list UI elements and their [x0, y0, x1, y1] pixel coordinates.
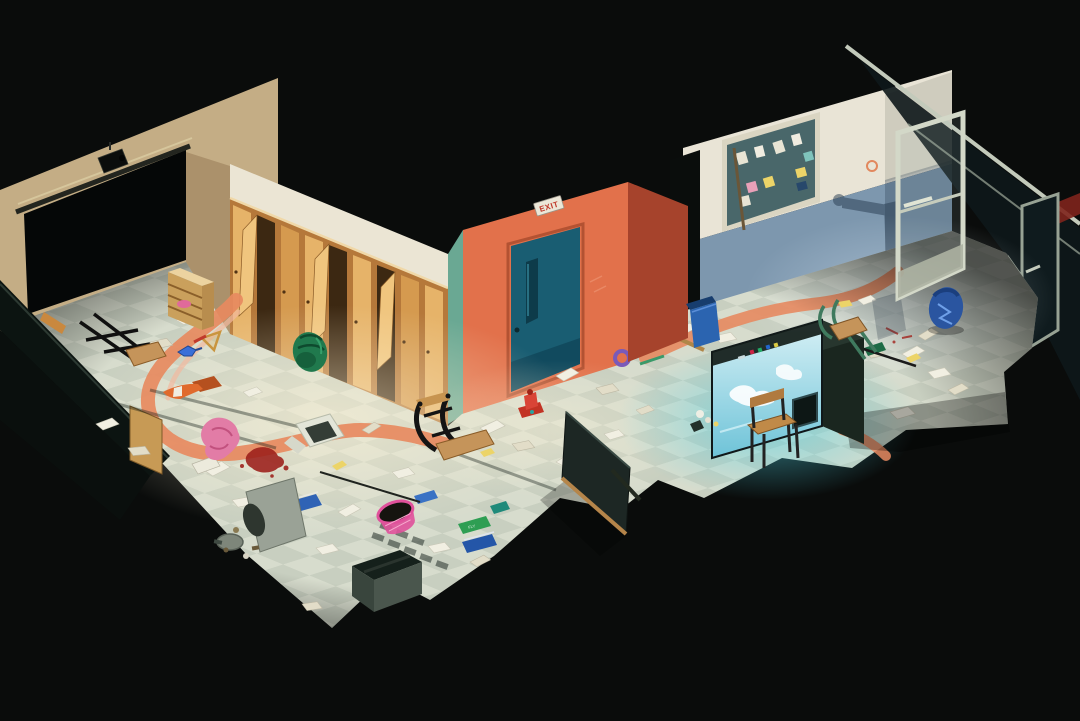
aquarium-hatch — [793, 393, 817, 428]
pink-cloth-in-cubby — [177, 300, 191, 308]
cubby-side — [202, 282, 214, 330]
door-handle — [515, 328, 520, 333]
orange-wall-side-face — [628, 182, 688, 362]
backpack-pocket — [296, 352, 316, 368]
isometric-scene-illustration: EXIT — [0, 0, 1080, 721]
